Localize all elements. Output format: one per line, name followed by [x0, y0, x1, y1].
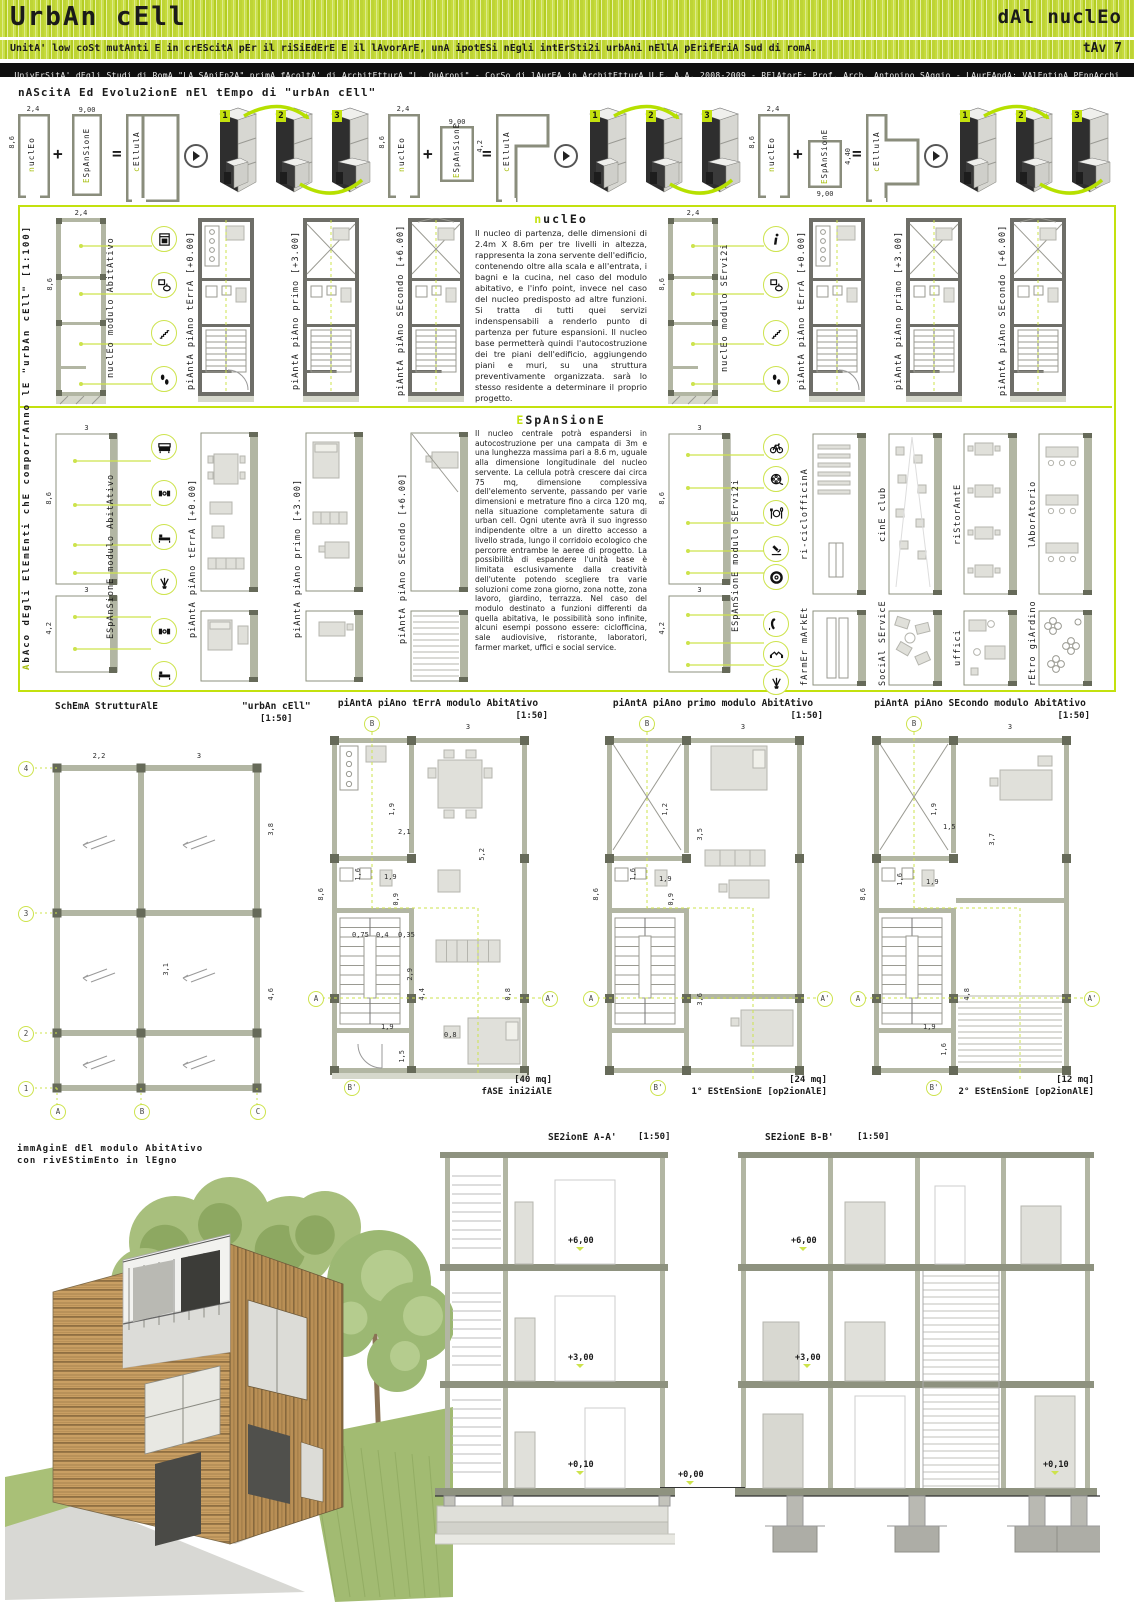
schema-row-axis: 1 — [18, 1081, 34, 1097]
espansione-abitativo-plan — [305, 432, 363, 684]
evolution-group: nuclEo2,48,6+ESpAnSionE9,004,40=cEllulA1… — [746, 100, 1114, 202]
plan-secondo-phase: 2° EStEnSionE [op2ionAlE] — [959, 1087, 1094, 1097]
university-bar-text: UnivErSitA' dEgli Studi di RomA "LA SApi… — [14, 71, 1119, 80]
espansione-servizi-outline-1 — [668, 433, 768, 585]
section-marker-b: B — [364, 716, 380, 732]
section-marker-b1: B' — [344, 1080, 360, 1096]
section-marker-a1: A' — [817, 991, 833, 1007]
arrow-icon — [184, 144, 208, 168]
level-marker-icon — [576, 1364, 584, 1372]
schema-row-axis: 2 — [18, 1026, 34, 1042]
plan-dim: 1,9 — [381, 1023, 394, 1031]
plan-dim: 4,4 — [418, 988, 426, 1001]
service-plan — [1038, 433, 1092, 595]
plan-dim-left: 8,6 — [592, 888, 600, 901]
nucleo-width-dim: 2,4 — [14, 105, 52, 113]
plan-secondo-area: [12 mq] — [1056, 1075, 1094, 1085]
section-bb-drawing — [735, 1146, 1100, 1601]
schema-row-axis: 3 — [18, 906, 34, 922]
chairs-icon — [151, 480, 177, 506]
schema-dim-right: 3,8 — [267, 823, 275, 836]
service-plan — [812, 610, 866, 686]
nucleo-body-text: Il nucleo di partenza, delle dimensioni … — [475, 228, 647, 400]
section-aa-title: SE2ionE A-A' — [548, 1132, 617, 1143]
abacus-sidebar-label: AbAco dEgli ElEmEnti chE comporrAnno lE … — [22, 209, 32, 686]
info-icon — [763, 226, 789, 252]
service-plan — [963, 433, 1017, 595]
schema-dim-top: 3 — [184, 752, 214, 760]
level-marker-icon — [799, 1247, 807, 1255]
plan-terra-scale: [1:50] — [515, 711, 548, 721]
plan-dim: 0,9 — [392, 893, 400, 906]
espansione-servizi-outline-2 — [668, 595, 768, 673]
plan-primo-phase: 1° EStEnSionE [op2ionAlE] — [692, 1087, 827, 1097]
section-marker-a: A — [850, 991, 866, 1007]
phone-icon — [763, 611, 789, 637]
service-plan — [1038, 610, 1092, 686]
level-marker-icon — [1051, 1471, 1059, 1479]
plan-dim: 0,35 — [398, 931, 415, 939]
service-plan-label: cinE club — [878, 433, 888, 595]
plan-terra-drawing — [318, 730, 550, 1082]
handshake-icon — [763, 641, 789, 667]
microscope-icon — [763, 536, 789, 562]
plan-dim: 1,6 — [354, 868, 362, 881]
evolution-group: nuclEo2,48,6+ESpAnSionE9,004,2=cEllulA12… — [376, 100, 744, 202]
plan-secondo-scale: [1:50] — [1057, 711, 1090, 721]
schema-subtitle: "urbAn cEll" — [242, 701, 311, 712]
plan-label: piAntA piAno SEcondo [+6.00] — [396, 218, 406, 402]
poster-page: UrbAn cEll dAl nuclEo UnitA' low coSt mu… — [0, 0, 1134, 1605]
module-label: ESpAnSionE modulo SErvi2i — [731, 430, 741, 682]
ground-level-label: +0,00 — [678, 1470, 704, 1480]
arrow-icon — [554, 144, 578, 168]
section-marker-a1: A' — [1084, 991, 1100, 1007]
plan-dim: 1,6 — [940, 1043, 948, 1056]
nucleo-abitativo-height-dim: 8,6 — [46, 278, 54, 291]
section-marker-b1: B' — [650, 1080, 666, 1096]
espansione-abitativo-plan — [410, 432, 468, 684]
nucleo-servizi-height-dim: 8,6 — [658, 278, 666, 291]
render-caption-1: immAginE dEl modulo AbitAtivo — [17, 1144, 203, 1154]
evolution-group: nuclEo2,48,6+ESpAnSionE9,00=cEllulA123 — [6, 100, 374, 202]
schema-title: SchEmA StrutturAlE — [55, 701, 158, 712]
schema-col-axis: C — [250, 1104, 266, 1120]
axon-step-number: 2 — [276, 110, 286, 122]
plan-dim: 0,9 — [667, 893, 675, 906]
plan-label: piAntA piAno tErrA [+0.00] — [797, 218, 807, 402]
tire-icon — [763, 564, 789, 590]
film-icon — [763, 466, 789, 492]
plan-dim: 3,7 — [988, 833, 996, 846]
nucleo-diagram-label: nuclEo — [767, 120, 776, 190]
plan-dim: 5,2 — [478, 848, 486, 861]
plan-dim: 0,8 — [444, 1031, 457, 1039]
espansione-body-text: Il nucleo centrale potrà espandersi in a… — [475, 429, 647, 681]
module-label: nuclEo modulo AbitAtivo — [106, 218, 116, 398]
plan-secondo-column: piAntA piAno SEcondo modulo AbitAtivo [1… — [860, 698, 1100, 1110]
plan-dim: 1,9 — [926, 878, 939, 886]
service-plan-label: ri-ciclofficinA — [800, 433, 810, 595]
abacus-divider — [20, 406, 1112, 408]
plan-dim: 1,6 — [629, 868, 637, 881]
plan-dim: 2,9 — [406, 968, 414, 981]
espansione-heading: ESpAnSionE — [475, 413, 647, 427]
section-marker-a: A — [308, 991, 324, 1007]
service-plan — [812, 433, 866, 595]
espansione-abitativo-plan — [200, 432, 258, 684]
level-label: +6,00 — [568, 1236, 594, 1246]
plan-dim: 0,4 — [376, 931, 389, 939]
service-plan-label: fArmEr mArkEt — [800, 610, 810, 686]
section-marker-b1: B' — [926, 1080, 942, 1096]
nucleo-abitativo-plan — [198, 218, 254, 402]
schema-dim-inner: 3,1 — [162, 963, 170, 976]
plan-dim: 0,75 — [352, 931, 369, 939]
nucleo-width-dim: 2,4 — [384, 105, 422, 113]
header-band: UrbAn cEll dAl nuclEo — [0, 0, 1134, 37]
module-label: nuclEo modulo SErvi2i — [720, 218, 730, 398]
espansione-servizi-width-dim: 3 — [668, 424, 731, 432]
schema-scale: [1:50] — [260, 714, 293, 724]
plan-dim-left: 8,6 — [317, 888, 325, 901]
structural-schema: SchEmA StrutturAlE "urbAn cEll" [1:50] 4… — [12, 698, 332, 1128]
axonometric-sequence — [210, 104, 380, 200]
axon-step-number: 1 — [590, 110, 600, 122]
nucleo-diagram-label: nuclEo — [397, 120, 406, 190]
section-marker-a1: A' — [542, 991, 558, 1007]
plan-label: piAntA piAno SEcondo [+6.00] — [398, 432, 408, 684]
axon-step-number: 1 — [960, 110, 970, 122]
plan-primo-drawing — [593, 730, 825, 1082]
espansione-dim-b: 4,40 — [844, 148, 852, 165]
stairs-icon — [763, 320, 789, 346]
espansione-servizi-width-dim-2: 3 — [668, 586, 731, 594]
footprints-icon — [763, 366, 789, 392]
nucleo-servizi-struct-plan — [668, 218, 768, 406]
espansione-dim-a: 9,00 — [436, 118, 478, 126]
plan-dim: 1,9 — [659, 875, 672, 883]
footprints-icon — [151, 366, 177, 392]
service-plan-label: lAborAtorio — [1028, 433, 1038, 595]
equals-sign: = — [112, 144, 122, 163]
nucleo-diagram-label: nuclEo — [27, 120, 36, 190]
plan-dim: 0,8 — [504, 988, 512, 1001]
espansione-servizi-height-dim-1: 8,6 — [658, 492, 666, 505]
university-bar: UnivErSitA' dEgli Studi di RomA "LA SApi… — [0, 63, 1134, 77]
module-label: ESpAnSionE modulo AbitAtivo — [106, 430, 116, 682]
plan-primo-scale: [1:50] — [790, 711, 823, 721]
nucleo-servizi-width-dim: 2,4 — [668, 209, 718, 217]
nucleo-servizi-plan — [906, 218, 962, 402]
espansione-dim-a: 9,00 — [68, 106, 106, 114]
plant-icon — [763, 669, 789, 695]
bed-icon — [151, 661, 177, 687]
evolution-strip: nuclEo2,48,6+ESpAnSionE9,00=cEllulA123nu… — [0, 100, 1134, 202]
espansione-servizi-height-dim-2: 4,2 — [658, 622, 666, 635]
plan-dim: 1,9 — [930, 803, 938, 816]
tav-number: tAv 7 — [1083, 41, 1122, 56]
plan-dim: 2,1 — [398, 828, 411, 836]
nucleo-height-dim: 8,6 — [748, 136, 756, 149]
axon-step-number: 2 — [646, 110, 656, 122]
plan-terra-area: [40 mq] — [514, 1075, 552, 1085]
page-subtitle: UnitA' low coSt mutAnti E in crEScitA pE… — [10, 43, 817, 54]
page-title: UrbAn cEll — [10, 2, 187, 32]
bicycle-icon — [763, 434, 789, 460]
level-label: +3,00 — [568, 1353, 594, 1363]
axon-step-number: 1 — [220, 110, 230, 122]
plan-dim-left: 8,6 — [859, 888, 867, 901]
level-label: +6,00 — [791, 1236, 817, 1246]
espansione-diagram-label: ESpAnSionE — [820, 144, 829, 184]
service-plan-label: riStorAntE — [953, 433, 963, 595]
plan-primo-column: piAntA piAno primo modulo AbitAtivo [1:5… — [593, 698, 833, 1110]
plan-dim: 1,5 — [398, 1050, 406, 1063]
service-plan — [963, 610, 1017, 686]
plan-dim: 4,8 — [963, 988, 971, 1001]
section-marker-a: A — [583, 991, 599, 1007]
section-marker-b: B — [639, 716, 655, 732]
stairs-icon — [151, 320, 177, 346]
plan-dim: 1,9 — [384, 873, 397, 881]
level-label: +0,10 — [1043, 1460, 1069, 1470]
plan-terra-column: piAntA piAno tErrA modulo AbitAtivo [1:5… — [318, 698, 558, 1110]
plan-dim-top: 3 — [453, 723, 483, 731]
level-marker-icon — [576, 1247, 584, 1255]
nucleo-height-dim: 8,6 — [378, 136, 386, 149]
axon-step-number: 3 — [332, 110, 342, 122]
plan-label: piAntA piAno primo [+3.00] — [293, 432, 303, 684]
level-label: +0,10 — [568, 1460, 594, 1470]
level-marker-icon — [803, 1364, 811, 1372]
sofa-icon — [151, 434, 177, 460]
plan-dim: 3,6 — [696, 993, 704, 1006]
ground-level-marker-icon — [686, 1481, 694, 1489]
nucleo-servizi-plan — [809, 218, 865, 402]
cellula-diagram-label: cEllulA — [132, 120, 141, 184]
schema-dim-top: 2,2 — [84, 752, 114, 760]
chairs-icon — [151, 618, 177, 644]
section-marker-b: B — [906, 716, 922, 732]
section-bb-scale: [1:50] — [857, 1132, 890, 1142]
subtitle-band: UnitA' low coSt mutAnti E in crEScitA pE… — [0, 40, 1134, 59]
plus-sign: + — [423, 144, 433, 163]
section-aa-scale: [1:50] — [638, 1132, 671, 1142]
plan-dim: 1,2 — [661, 803, 669, 816]
plus-sign: + — [53, 144, 63, 163]
arrow-icon — [924, 144, 948, 168]
equals-sign: = — [852, 144, 862, 163]
bathroom-icon — [763, 272, 789, 298]
plan-dim: 1,9 — [388, 803, 396, 816]
render-block: immAginE dEl modulo AbitAtivo con rivESt… — [5, 1142, 453, 1605]
espansione-dim-a: 9,00 — [804, 190, 846, 198]
service-plan-label: rEtro giArdino — [1028, 610, 1038, 686]
espansione-abitativo-height-dim-2: 4,2 — [45, 622, 53, 635]
schema-col-axis: B — [134, 1104, 150, 1120]
bathroom-icon — [151, 272, 177, 298]
plan-terra-phase: fASE ini2iAlE — [482, 1087, 552, 1097]
espansione-abitativo-outline-2 — [55, 595, 155, 673]
plan-primo-area: [24 mq] — [789, 1075, 827, 1085]
nucleo-width-dim: 2,4 — [754, 105, 792, 113]
plan-dim: 1,5 — [943, 823, 956, 831]
cellula-diagram-label: cEllulA — [872, 120, 881, 184]
nucleo-servizi-plan — [1010, 218, 1066, 402]
service-plan-label: uffici — [953, 610, 963, 686]
bed-icon — [151, 524, 177, 550]
plan-secondo-title: piAntA piAno SEcondo modulo AbitAtivo — [860, 698, 1100, 709]
nucleo-abitativo-width-dim: 2,4 — [56, 209, 106, 217]
plan-label: piAntA piAno tErrA [+0.00] — [186, 218, 196, 402]
schema-dim-right: 4,6 — [267, 988, 275, 1001]
plan-label: piAntA piAno tErrA [+0.00] — [188, 432, 198, 684]
render-image — [5, 1172, 453, 1605]
axonometric-sequence — [950, 104, 1120, 200]
header-right-title: dAl nuclEo — [998, 6, 1122, 28]
axon-step-number: 3 — [1072, 110, 1082, 122]
cellula-diagram-label: cEllulA — [502, 120, 511, 184]
schema-col-axis: A — [50, 1104, 66, 1120]
espansione-abitativo-height-dim-1: 8,6 — [45, 492, 53, 505]
nucleo-abitativo-plan — [408, 218, 464, 402]
plan-dim-top: 3 — [995, 723, 1025, 731]
service-plan-label: SociAl SErvicE — [878, 610, 888, 686]
axon-step-number: 3 — [702, 110, 712, 122]
evolution-heading: nAScitA Ed Evolu2ionE nEl tEmpo di "urbA… — [18, 86, 376, 99]
section-aa: SE2ionE A-A' [1:50] +6,00+3,00+0,10 — [430, 1128, 680, 1605]
level-marker-icon — [576, 1471, 584, 1479]
plan-label: piAntA piAno primo [+3.00] — [894, 218, 904, 402]
plan-label: piAntA piAno SEcondo [+6.00] — [998, 218, 1008, 402]
nucleo-height-dim: 8,6 — [8, 136, 16, 149]
schema-drawing — [12, 728, 322, 1126]
nucleo-abitativo-plan — [303, 218, 359, 402]
plan-dim: 3,5 — [696, 828, 704, 841]
service-plan — [888, 610, 942, 686]
level-label: +3,00 — [795, 1353, 821, 1363]
plan-terra-title: piAntA piAno tErrA modulo AbitAtivo — [318, 698, 558, 709]
plus-sign: + — [793, 144, 803, 163]
axonometric-sequence — [580, 104, 750, 200]
schema-row-axis: 4 — [18, 761, 34, 777]
espansione-diagram-label: ESpAnSionE — [452, 130, 461, 178]
plan-secondo-drawing — [860, 730, 1092, 1082]
section-aa-drawing — [435, 1146, 675, 1601]
restaurant-icon — [763, 500, 789, 526]
espansione-diagram-label: ESpAnSionE — [82, 118, 91, 192]
render-caption-2: con rivEStimEnto in lEgno — [17, 1156, 177, 1166]
equals-sign: = — [482, 144, 492, 163]
nucleo-heading: nuclEo — [475, 212, 647, 226]
section-bb-title: SE2ionE B-B' — [765, 1132, 834, 1143]
axon-step-number: 2 — [1016, 110, 1026, 122]
section-bb: SE2ionE B-B' [1:50] +6,00+3,00+0,10 — [725, 1128, 1103, 1605]
service-plan — [888, 433, 942, 595]
plan-dim: 1,9 — [923, 1023, 936, 1031]
plan-label: piAntA piAno primo [+3.00] — [291, 218, 301, 402]
espansione-abitativo-outline-1 — [55, 433, 155, 585]
plan-dim-top: 3 — [728, 723, 758, 731]
plan-dim: 1,6 — [896, 873, 904, 886]
plan-primo-title: piAntA piAno primo modulo AbitAtivo — [593, 698, 833, 709]
ground-line-connector — [660, 1487, 745, 1488]
plant-icon — [151, 569, 177, 595]
kitchen-icon — [151, 226, 177, 252]
